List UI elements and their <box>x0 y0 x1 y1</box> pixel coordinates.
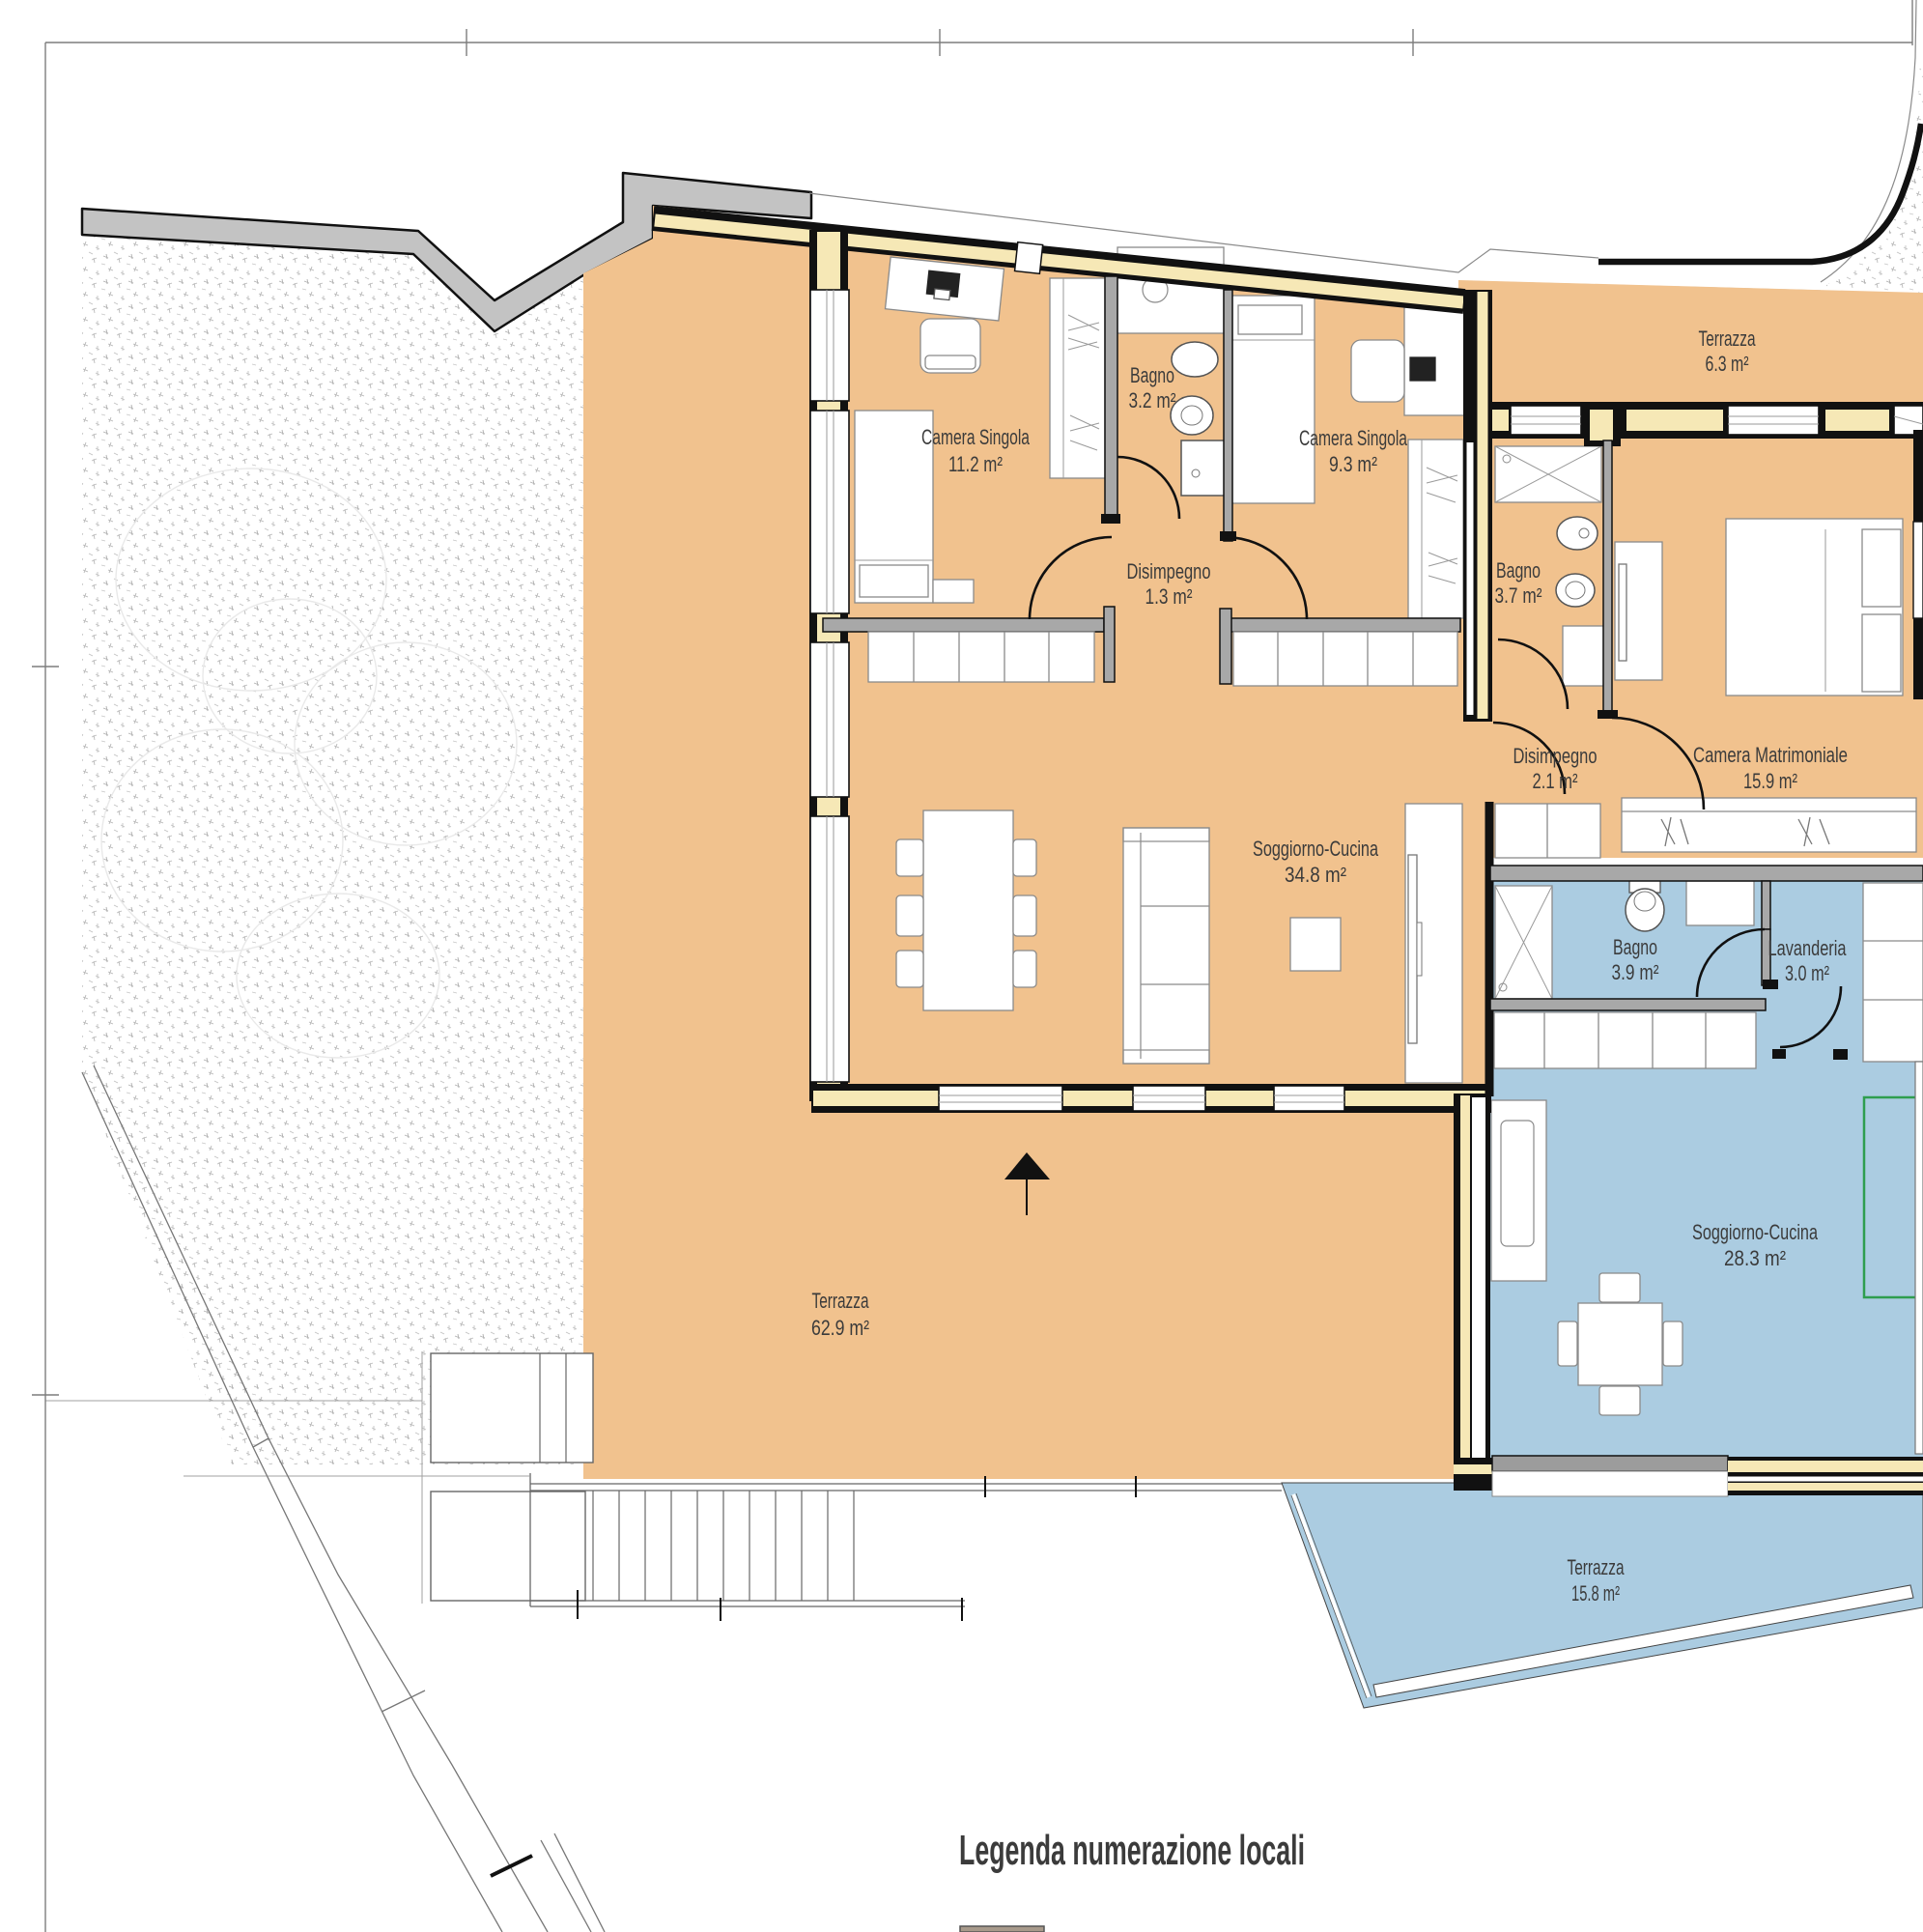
svg-text:6.3 m²: 6.3 m² <box>1706 352 1749 376</box>
svg-text:34.8 m²: 34.8 m² <box>1285 863 1346 887</box>
svg-text:Camera Singola: Camera Singola <box>921 425 1031 449</box>
svg-text:Disimpegno: Disimpegno <box>1513 744 1598 768</box>
svg-text:Terrazza: Terrazza <box>1699 327 1757 351</box>
svg-text:Soggiorno-Cucina: Soggiorno-Cucina <box>1692 1220 1819 1244</box>
svg-text:11.2 m²: 11.2 m² <box>948 452 1003 476</box>
svg-text:9.3 m²: 9.3 m² <box>1329 452 1377 476</box>
svg-text:Terrazza: Terrazza <box>812 1289 870 1313</box>
svg-text:Disimpegno: Disimpegno <box>1127 559 1211 583</box>
svg-text:3.9 m²: 3.9 m² <box>1612 960 1659 984</box>
svg-text:28.3 m²: 28.3 m² <box>1724 1246 1786 1270</box>
svg-text:2.1 m²: 2.1 m² <box>1533 769 1578 793</box>
svg-text:15.8 m²: 15.8 m² <box>1571 1581 1620 1605</box>
svg-text:Camera Singola: Camera Singola <box>1299 426 1408 450</box>
svg-text:Camera Matrimoniale: Camera Matrimoniale <box>1693 743 1848 767</box>
svg-text:Bagno: Bagno <box>1613 935 1657 959</box>
svg-text:Lavanderia: Lavanderia <box>1768 936 1848 960</box>
svg-text:Bagno: Bagno <box>1130 363 1174 387</box>
svg-text:Soggiorno-Cucina: Soggiorno-Cucina <box>1253 837 1379 861</box>
svg-text:Legenda numerazione locali: Legenda numerazione locali <box>959 1827 1305 1874</box>
svg-text:Terrazza: Terrazza <box>1568 1555 1626 1579</box>
svg-text:62.9 m²: 62.9 m² <box>811 1316 869 1340</box>
svg-text:3.2 m²: 3.2 m² <box>1129 388 1176 412</box>
svg-text:1.3 m²: 1.3 m² <box>1145 584 1193 609</box>
svg-text:15.9 m²: 15.9 m² <box>1743 769 1797 793</box>
svg-text:Bagno: Bagno <box>1496 558 1541 582</box>
svg-text:3.7 m²: 3.7 m² <box>1495 583 1542 608</box>
svg-text:3.0 m²: 3.0 m² <box>1785 961 1829 985</box>
